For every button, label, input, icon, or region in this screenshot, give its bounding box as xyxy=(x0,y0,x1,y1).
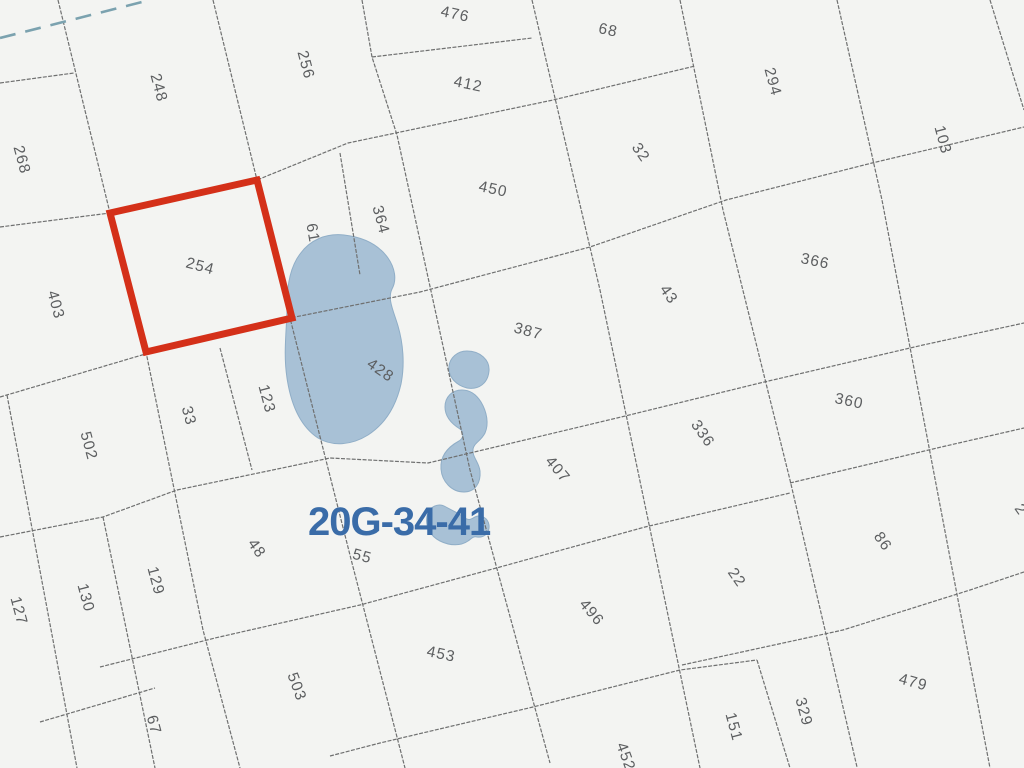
parcel-label-130: 130 xyxy=(73,582,98,615)
parcel-label-412: 412 xyxy=(452,73,484,97)
parcel-label-503: 503 xyxy=(283,670,310,703)
parcel-label-476: 476 xyxy=(439,3,471,27)
parcel-labels-layer: 20G-34-41 248256268476684122941034503236… xyxy=(0,0,1024,768)
parcel-label-86: 86 xyxy=(869,529,895,555)
parcel-label-387: 387 xyxy=(512,320,545,345)
parcel-label-496: 496 xyxy=(575,596,607,630)
parcel-label-127: 127 xyxy=(6,595,31,628)
parcel-label-48: 48 xyxy=(243,536,269,562)
parcel-label-55: 55 xyxy=(350,546,373,568)
parcel-label-502: 502 xyxy=(76,430,101,463)
parcel-label-151: 151 xyxy=(721,711,746,744)
parcel-label-364: 364 xyxy=(368,204,393,237)
parcel-label-452: 452 xyxy=(612,740,639,768)
parcel-map: 20G-34-41 248256268476684122941034503236… xyxy=(0,0,1024,768)
parcel-label-68: 68 xyxy=(597,20,620,42)
parcel-label-33: 33 xyxy=(177,404,199,427)
parcel-label-123: 123 xyxy=(254,383,279,416)
parcel-label-366: 366 xyxy=(799,250,831,274)
parcel-label-360: 360 xyxy=(833,390,865,414)
parcel-label-256: 256 xyxy=(293,49,318,82)
township-range-label: 20G-34-41 xyxy=(308,500,490,545)
parcel-label-43: 43 xyxy=(655,282,681,308)
parcel-label-479: 479 xyxy=(897,671,930,696)
parcel-label-268: 268 xyxy=(9,144,34,177)
parcel-label-403: 403 xyxy=(43,289,68,322)
parcel-label-294: 294 xyxy=(760,66,785,99)
parcel-label-407: 407 xyxy=(541,453,573,487)
parcel-label-450: 450 xyxy=(477,178,509,202)
parcel-label-336: 336 xyxy=(686,417,717,451)
parcel-label-329: 329 xyxy=(791,696,816,729)
parcel-label-254: 254 xyxy=(184,255,217,280)
parcel-label-453: 453 xyxy=(425,643,457,667)
parcel-label-103: 103 xyxy=(930,124,955,157)
parcel-label-67: 67 xyxy=(142,713,164,736)
parcel-label-428: 428 xyxy=(363,355,397,386)
parcel-label-22: 22 xyxy=(723,565,749,591)
parcel-label-61: 61 xyxy=(301,222,322,244)
parcel-label-32: 32 xyxy=(627,140,653,166)
parcel-label-129: 129 xyxy=(143,565,168,598)
parcel-label-248: 248 xyxy=(146,72,171,105)
parcel-label-2: 2 xyxy=(1010,501,1024,519)
